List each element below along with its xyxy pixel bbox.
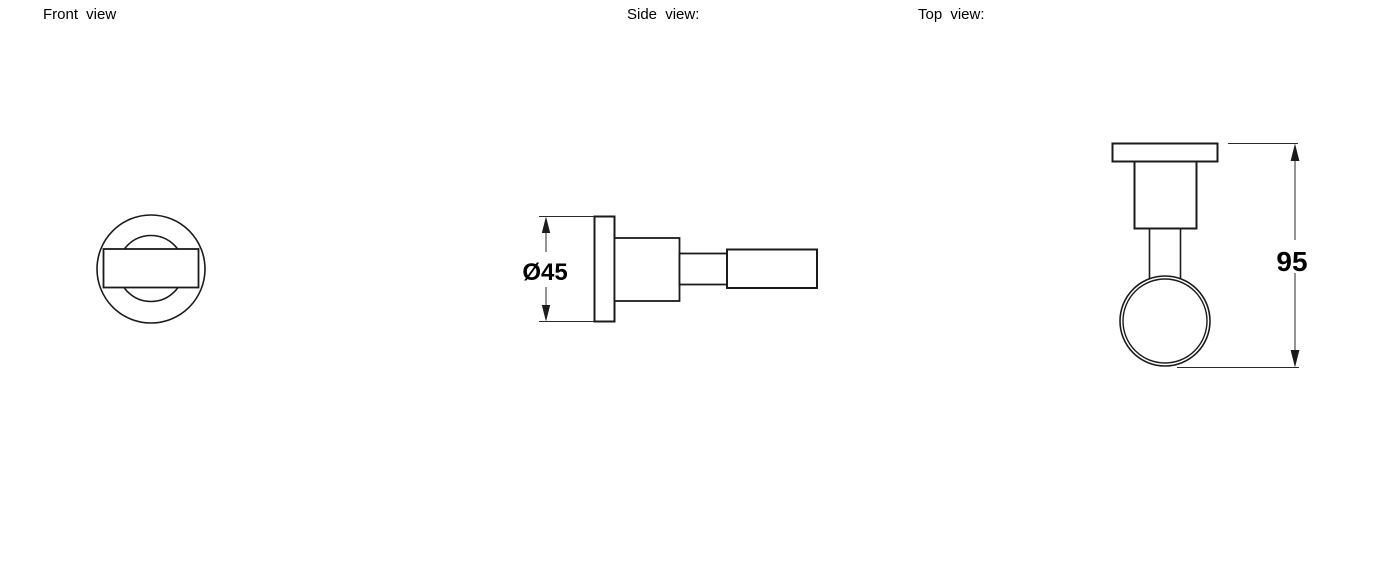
technical-drawing-page: Front view Side view: Top view: Ø45: [0, 0, 1380, 567]
front-hook-bar-rect: [104, 249, 199, 288]
drawing-canvas: Ø45 95: [0, 0, 1380, 567]
diameter-dimension-label: Ø45: [522, 259, 567, 286]
diameter-arrow-down: [542, 305, 550, 322]
top-wall-plate-rect: [1113, 144, 1218, 162]
height-arrow-up: [1291, 144, 1300, 162]
top-body-rect: [1135, 162, 1197, 229]
height-arrow-down: [1291, 350, 1300, 368]
top-view-drawing: [1113, 144, 1218, 367]
side-neck-rect: [680, 254, 728, 285]
top-knob-outer-circle: [1120, 276, 1210, 366]
side-view-drawing: [595, 217, 818, 322]
height-dimension-label: 95: [1276, 246, 1307, 277]
side-wall-plate-rect: [595, 217, 615, 322]
diameter-arrow-up: [542, 217, 550, 234]
side-body-rect: [615, 238, 680, 301]
side-hook-tip-rect: [727, 250, 817, 289]
front-view-drawing: [97, 215, 205, 323]
diameter-dimension: Ø45: [522, 217, 594, 322]
